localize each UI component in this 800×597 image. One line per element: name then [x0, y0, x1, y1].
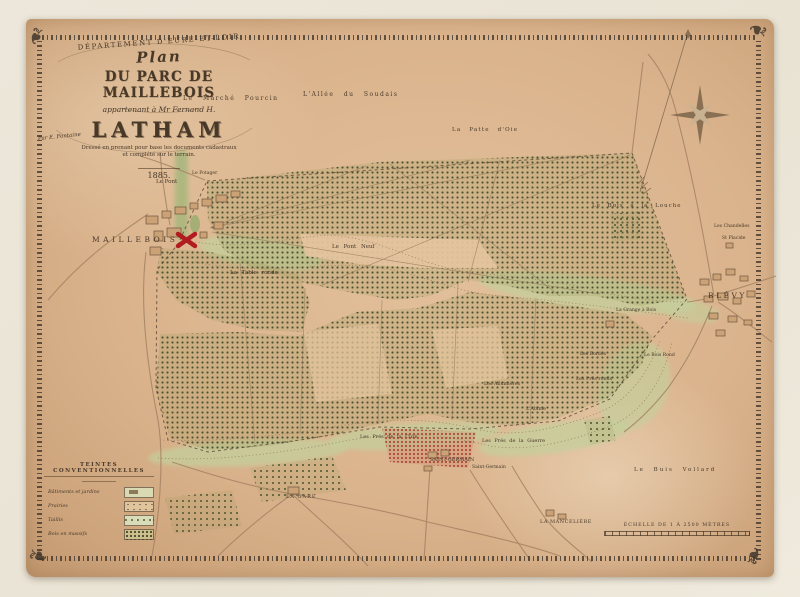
legend-swatch-meadow	[124, 501, 154, 512]
title-cartouche: DÉPARTEMENT D'EURE-ET-LOIR Plan DU PARC …	[50, 38, 268, 183]
scale-bar: ÉCHELLE DE 1 À 2500 MÈTRES	[604, 523, 750, 536]
legend-swatch-buildings	[124, 487, 154, 498]
map-photo: MAILLEBOIS BLÉVY Le Marché Pourcin L'All…	[0, 0, 800, 597]
garland-border-bottom	[42, 556, 758, 561]
legend-row: Bois en massifs	[44, 528, 154, 542]
corner-flourish-icon: ❧	[740, 544, 767, 568]
survey-note-2: et complété sur le terrain.	[50, 152, 268, 159]
survey-note-1: Dressé en prenant pour base les document…	[50, 145, 268, 152]
legend-label: Taillis	[48, 517, 63, 523]
legend-label: Bâtiments et jardins	[48, 489, 99, 495]
legend-divider	[82, 479, 116, 482]
owner-name: LATHAM	[50, 117, 268, 143]
corner-flourish-icon: ❧	[26, 542, 50, 569]
map-year: 1885.	[138, 168, 181, 181]
legend-label: Prairies	[48, 503, 68, 509]
legend: TEINTES CONVENTIONNELLES Bâtiments et ja…	[44, 462, 154, 542]
legend-swatch-woods	[124, 529, 154, 540]
garland-border-right	[756, 40, 761, 560]
legend-row: Taillis	[44, 514, 154, 528]
corner-flourish-icon: ❧	[22, 24, 49, 48]
ownership-line: appartenant à Mr Fernand H.	[50, 105, 268, 114]
legend-title: TEINTES CONVENTIONNELLES	[44, 462, 154, 477]
legend-row: Bâtiments et jardins	[44, 486, 154, 500]
legend-swatch-coppice	[124, 515, 154, 526]
legend-row: Prairies	[44, 500, 154, 514]
garland-border-left	[37, 40, 42, 560]
legend-label: Bois en massifs	[48, 531, 87, 537]
map-title: DU PARC DE MAILLEBOIS	[50, 69, 268, 103]
scale-rule	[604, 531, 750, 536]
scale-label: ÉCHELLE DE 1 À 2500 MÈTRES	[604, 523, 750, 528]
corner-flourish-icon: ❧	[746, 16, 770, 43]
